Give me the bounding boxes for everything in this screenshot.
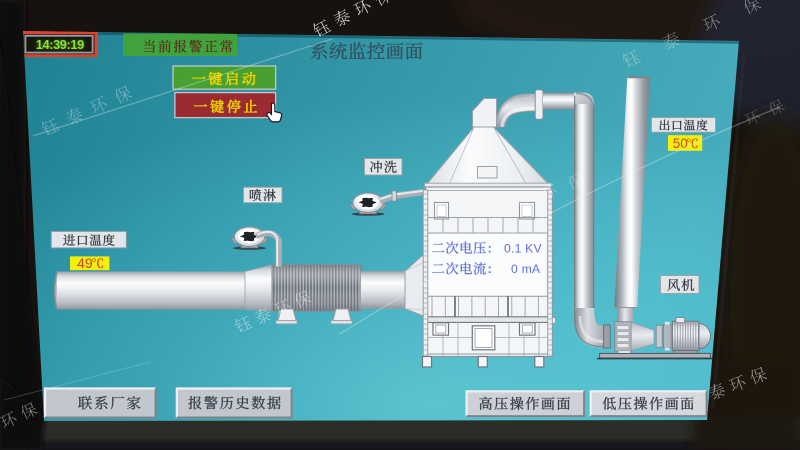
svg-text::: :: [488, 261, 492, 276]
svg-text:0.1 KV: 0.1 KV: [504, 241, 542, 255]
svg-text:0 mA: 0 mA: [511, 262, 541, 276]
svg-text:50: 50: [673, 136, 688, 151]
svg-text:49: 49: [77, 256, 93, 272]
svg-text:14:39:19: 14:39:19: [36, 37, 84, 52]
svg-text::: :: [488, 240, 492, 255]
